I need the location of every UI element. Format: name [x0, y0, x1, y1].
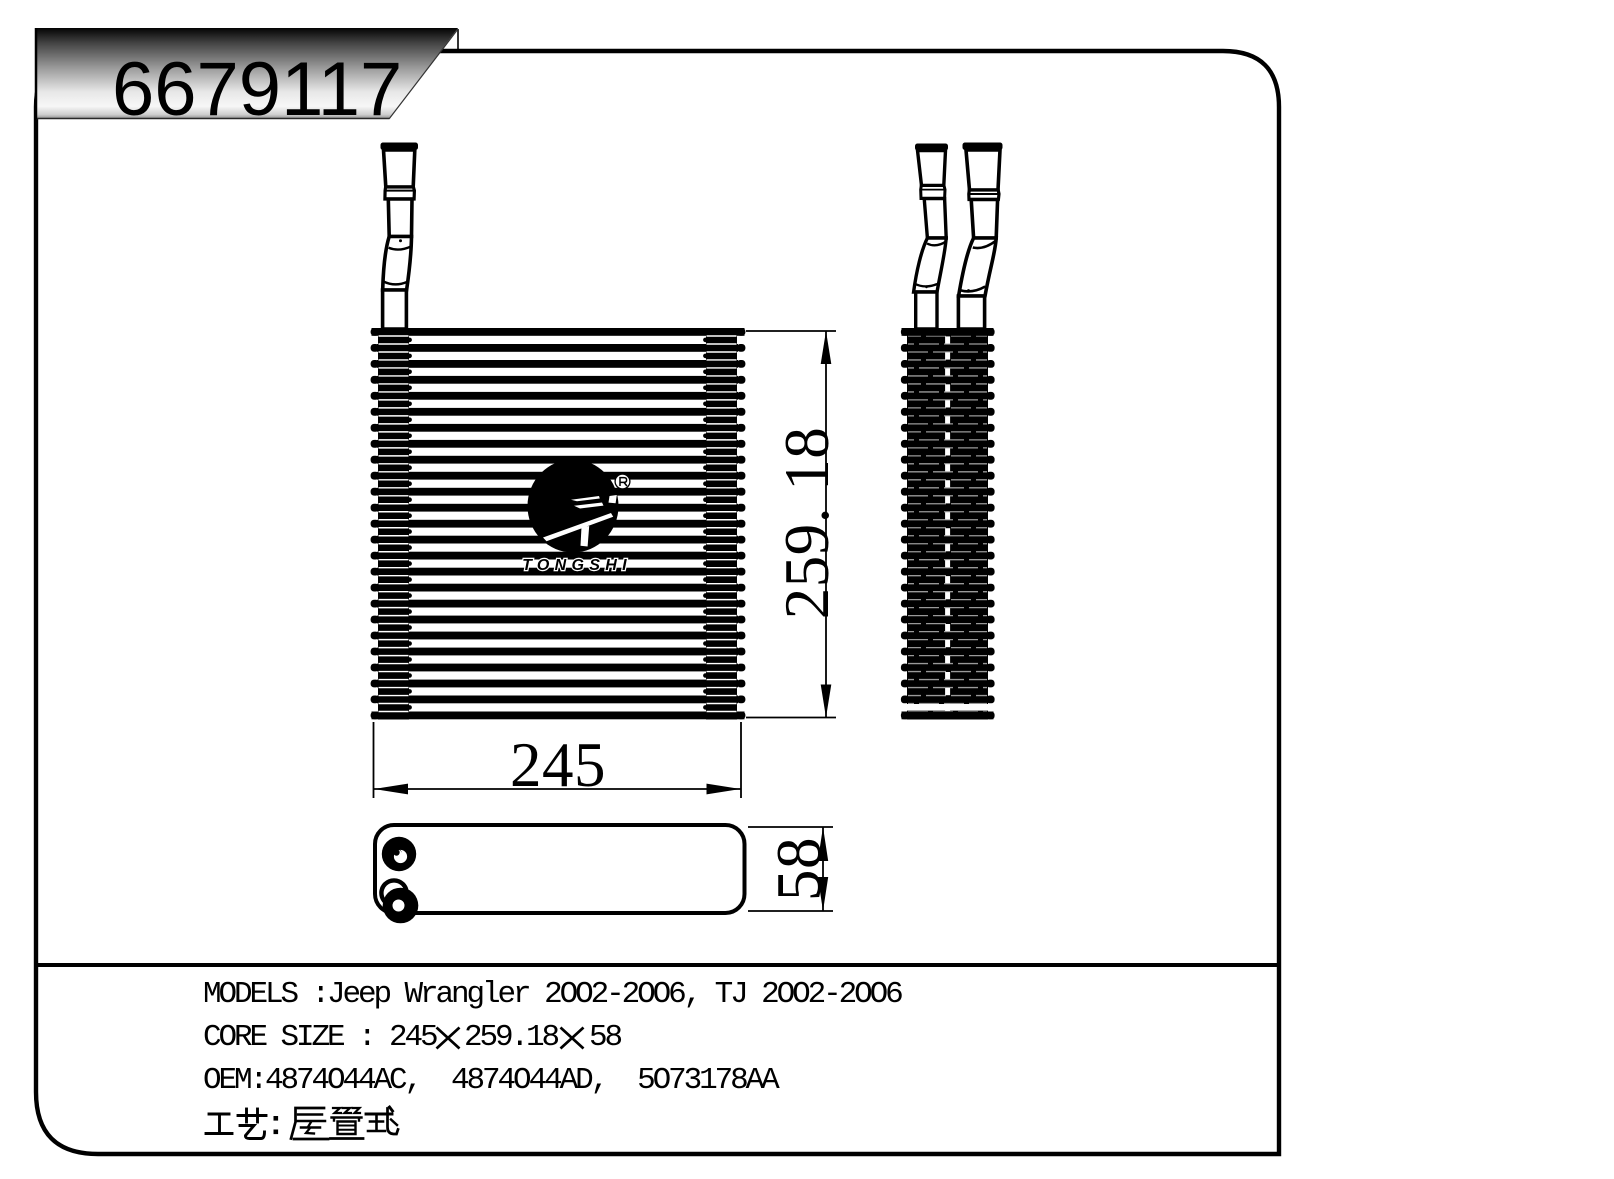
svg-text:CORE SIZE : 245: CORE SIZE : 245 — [203, 1020, 437, 1055]
svg-text:259.18: 259.18 — [464, 1020, 559, 1055]
svg-text:58: 58 — [589, 1020, 622, 1055]
svg-text:OEM:4874O44AC, 4874O44AD, 5O: OEM:4874O44AC, 4874O44AD, 5O73178AA — [203, 1063, 780, 1098]
svg-text:MODELS :Jeep Wrangler 2OO2-2OO: MODELS :Jeep Wrangler 2OO2-2OO6, TJ 2OO2… — [203, 977, 902, 1012]
svg-text:58: 58 — [764, 837, 834, 901]
svg-text:259. 18: 259. 18 — [772, 427, 842, 620]
svg-text:TONGSHI: TONGSHI — [522, 557, 632, 574]
svg-text:6679117: 6679117 — [112, 47, 402, 132]
svg-text:245: 245 — [510, 730, 606, 800]
